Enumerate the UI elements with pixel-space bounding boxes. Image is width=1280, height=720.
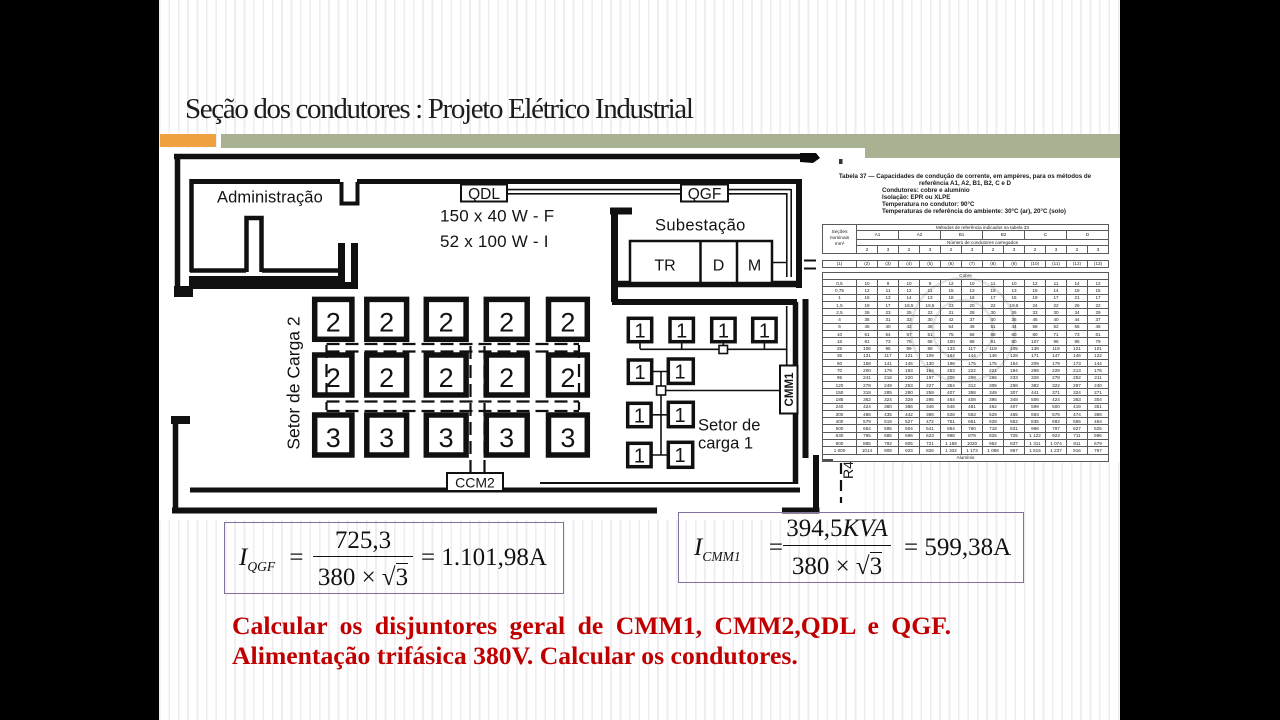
svg-text:QGF: QGF (688, 186, 722, 203)
svg-text:R4: R4 (840, 461, 856, 479)
svg-text:D: D (713, 258, 725, 275)
svg-text:Administração: Administração (217, 189, 323, 207)
svg-text:2: 2 (439, 363, 454, 393)
svg-text:carga 1: carga 1 (698, 435, 753, 453)
svg-text:1: 1 (634, 320, 645, 342)
svg-text:1: 1 (634, 362, 645, 384)
svg-text:2: 2 (499, 308, 514, 338)
svg-text:2: 2 (379, 363, 394, 393)
svg-text:1: 1 (676, 320, 687, 342)
svg-text:2: 2 (560, 308, 575, 338)
svg-text:Setor de Carga 2: Setor de Carga 2 (284, 316, 304, 449)
svg-text:1: 1 (634, 405, 645, 427)
svg-text:2: 2 (326, 363, 341, 393)
svg-text:3: 3 (379, 423, 394, 453)
svg-text:Subestação: Subestação (655, 217, 746, 235)
svg-text:2: 2 (379, 308, 394, 338)
svg-text:1: 1 (674, 405, 685, 427)
svg-text:150 x 40 W - F: 150 x 40 W - F (440, 207, 554, 226)
svg-text:3: 3 (499, 423, 514, 453)
svg-text:3: 3 (560, 423, 575, 453)
svg-text:1: 1 (674, 362, 685, 384)
svg-text:52 x 100 W - I: 52 x 100 W - I (440, 232, 549, 251)
svg-text:M: M (748, 258, 761, 275)
svg-text:2: 2 (499, 363, 514, 393)
svg-text:QDL: QDL (468, 186, 500, 203)
svg-text:1: 1 (759, 320, 770, 342)
svg-text:2: 2 (326, 308, 341, 338)
svg-text:2: 2 (439, 308, 454, 338)
svg-text:3: 3 (326, 423, 341, 453)
svg-text:TR: TR (654, 258, 675, 275)
svg-text:Setor de: Setor de (698, 417, 760, 435)
svg-text:3: 3 (439, 423, 454, 453)
svg-text:2: 2 (560, 363, 575, 393)
svg-text:1: 1 (634, 445, 645, 467)
svg-text:CMM1: CMM1 (784, 372, 796, 406)
svg-text:1: 1 (674, 445, 685, 467)
svg-text:1: 1 (718, 320, 729, 342)
svg-text:CCM2: CCM2 (455, 475, 495, 491)
